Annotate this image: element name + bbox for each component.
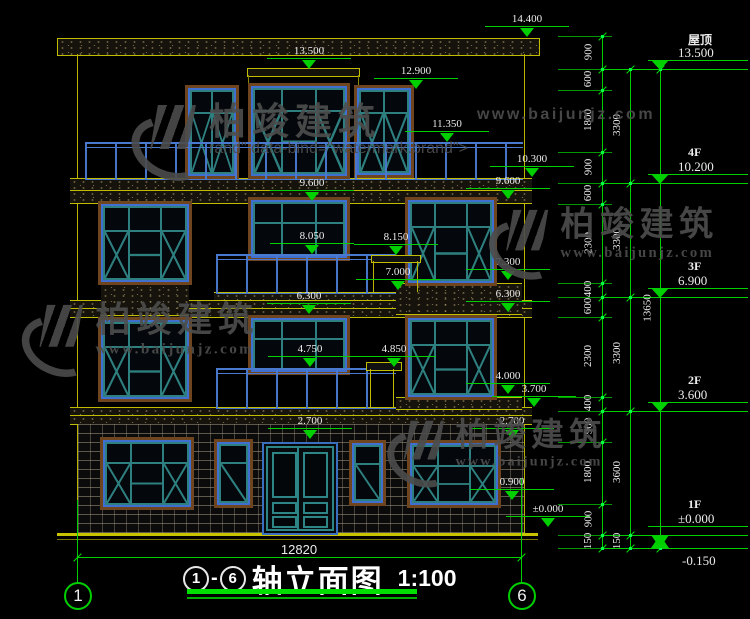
floor-label: 2F <box>688 373 701 388</box>
ground-dim-text: 12820 <box>269 542 329 557</box>
floor-label: 1F <box>688 497 701 512</box>
dim-value: 3300 <box>611 182 623 296</box>
dim-value: 3300 <box>611 68 623 182</box>
axis-line-1 <box>77 500 78 582</box>
right-wall-line <box>524 54 525 535</box>
dim-value: 900 <box>582 35 594 68</box>
floor-triangle-icon <box>651 402 669 412</box>
dim-node <box>601 296 604 299</box>
dim-value: 900 <box>582 151 594 182</box>
floor-level-line <box>602 297 748 298</box>
floor-level-line <box>602 69 748 70</box>
dim-node <box>601 182 604 185</box>
ground-line-2 <box>57 539 538 540</box>
floor-triangle-up-icon <box>651 535 669 548</box>
dim-node <box>601 89 604 92</box>
dim-node <box>601 203 604 206</box>
floor-elevation: ±0.000 <box>678 511 714 527</box>
floor-elevation: 3.600 <box>678 387 707 403</box>
dim-value: 900 <box>582 410 594 441</box>
title-axis-left: 1 <box>183 566 209 592</box>
dim-value: 1800 <box>582 89 594 151</box>
floor-triangle-icon <box>651 60 669 70</box>
dim-chain-line <box>630 69 631 548</box>
ledge-post <box>417 261 418 292</box>
entry-door <box>262 442 338 535</box>
floor-label: 4F <box>688 145 701 160</box>
spandrel-2f-right <box>396 397 522 410</box>
dim-node <box>601 441 604 444</box>
floor-level-line <box>602 183 748 184</box>
title-dash: - <box>211 567 218 590</box>
window-3f-center <box>251 200 347 258</box>
window-1f-right <box>410 443 498 505</box>
floor-level-line <box>602 548 748 549</box>
window-3f-right <box>408 200 494 283</box>
dim-value: 2300 <box>582 316 594 396</box>
floor-level-line <box>602 411 748 412</box>
dim-node <box>601 68 604 71</box>
dim-node <box>601 534 604 537</box>
dim-node <box>629 534 632 537</box>
spandrel-3f-right <box>396 283 522 315</box>
window-2f-right <box>408 318 494 397</box>
dim-node <box>601 151 604 154</box>
roof-parapet <box>247 68 360 77</box>
title-underline-thick <box>187 589 417 594</box>
dim-chain-line <box>602 36 603 548</box>
railing-4f <box>85 142 523 180</box>
floor-level-line <box>602 535 748 536</box>
spandrel-3f-left <box>101 280 189 316</box>
dim-value: 150 <box>611 528 623 554</box>
axis-bubble-1: 1 <box>64 582 92 610</box>
dim-node <box>601 282 604 285</box>
dim-node <box>601 547 604 550</box>
dim-value: 1800 <box>582 441 594 503</box>
floor-elevation: 13.500 <box>678 45 714 61</box>
railing-3f <box>216 254 396 294</box>
floor-elevation: 10.200 <box>678 159 714 175</box>
dim-node <box>601 396 604 399</box>
dim-node <box>629 68 632 71</box>
dim-node <box>601 503 604 506</box>
title-axis-right: 6 <box>220 566 246 592</box>
floor-triangle-icon <box>651 288 669 298</box>
floor-triangle-icon <box>651 174 669 184</box>
axis-bubble-6: 6 <box>508 582 536 610</box>
dim-node <box>629 547 632 550</box>
dim-node <box>629 410 632 413</box>
cad-elevation-drawing: 1 6 12820 1 - 6 轴立面图 1:100 柏竣建筑 rand" da… <box>0 0 750 619</box>
dim-value: 150 <box>582 528 594 554</box>
dim-value: 13650 <box>641 68 653 547</box>
title-underline-thin <box>187 597 417 599</box>
dim-node <box>601 35 604 38</box>
floor-label: 3F <box>688 259 701 274</box>
ledge-post <box>373 261 374 292</box>
window-1f-small-left <box>217 442 250 505</box>
dim-node <box>629 182 632 185</box>
pillar-2f <box>370 369 394 407</box>
dim-value: 600 <box>582 180 594 206</box>
watermark-url: www.baijunjz.com <box>477 106 655 124</box>
dim-value: 600 <box>582 66 594 92</box>
drawing-title: 1 - 6 轴立面图 1:100 <box>183 556 457 601</box>
floor-elevation: -0.150 <box>682 553 716 569</box>
dim-node <box>601 316 604 319</box>
window-2f-left <box>101 320 189 399</box>
dim-node <box>601 410 604 413</box>
title-scale: 1:100 <box>398 565 457 592</box>
dim-value: 3600 <box>611 410 623 534</box>
window-1f-left <box>103 440 191 507</box>
dim-value: 2300 <box>582 203 594 282</box>
window-3f-left <box>101 204 189 282</box>
dim-chain-line <box>660 69 661 548</box>
dim-node <box>629 296 632 299</box>
dim-value: 3300 <box>611 296 623 410</box>
window-1f-small-right <box>352 443 383 503</box>
ledge-8150 <box>371 255 421 263</box>
window-2f-center <box>251 318 347 372</box>
title-name: 轴立面图 <box>252 556 384 601</box>
railing-2f <box>216 368 396 409</box>
door-leaf-right <box>297 446 334 531</box>
floor-elevation: 6.900 <box>678 273 707 289</box>
axis-line-6 <box>521 478 522 582</box>
roof-slab <box>57 38 540 56</box>
